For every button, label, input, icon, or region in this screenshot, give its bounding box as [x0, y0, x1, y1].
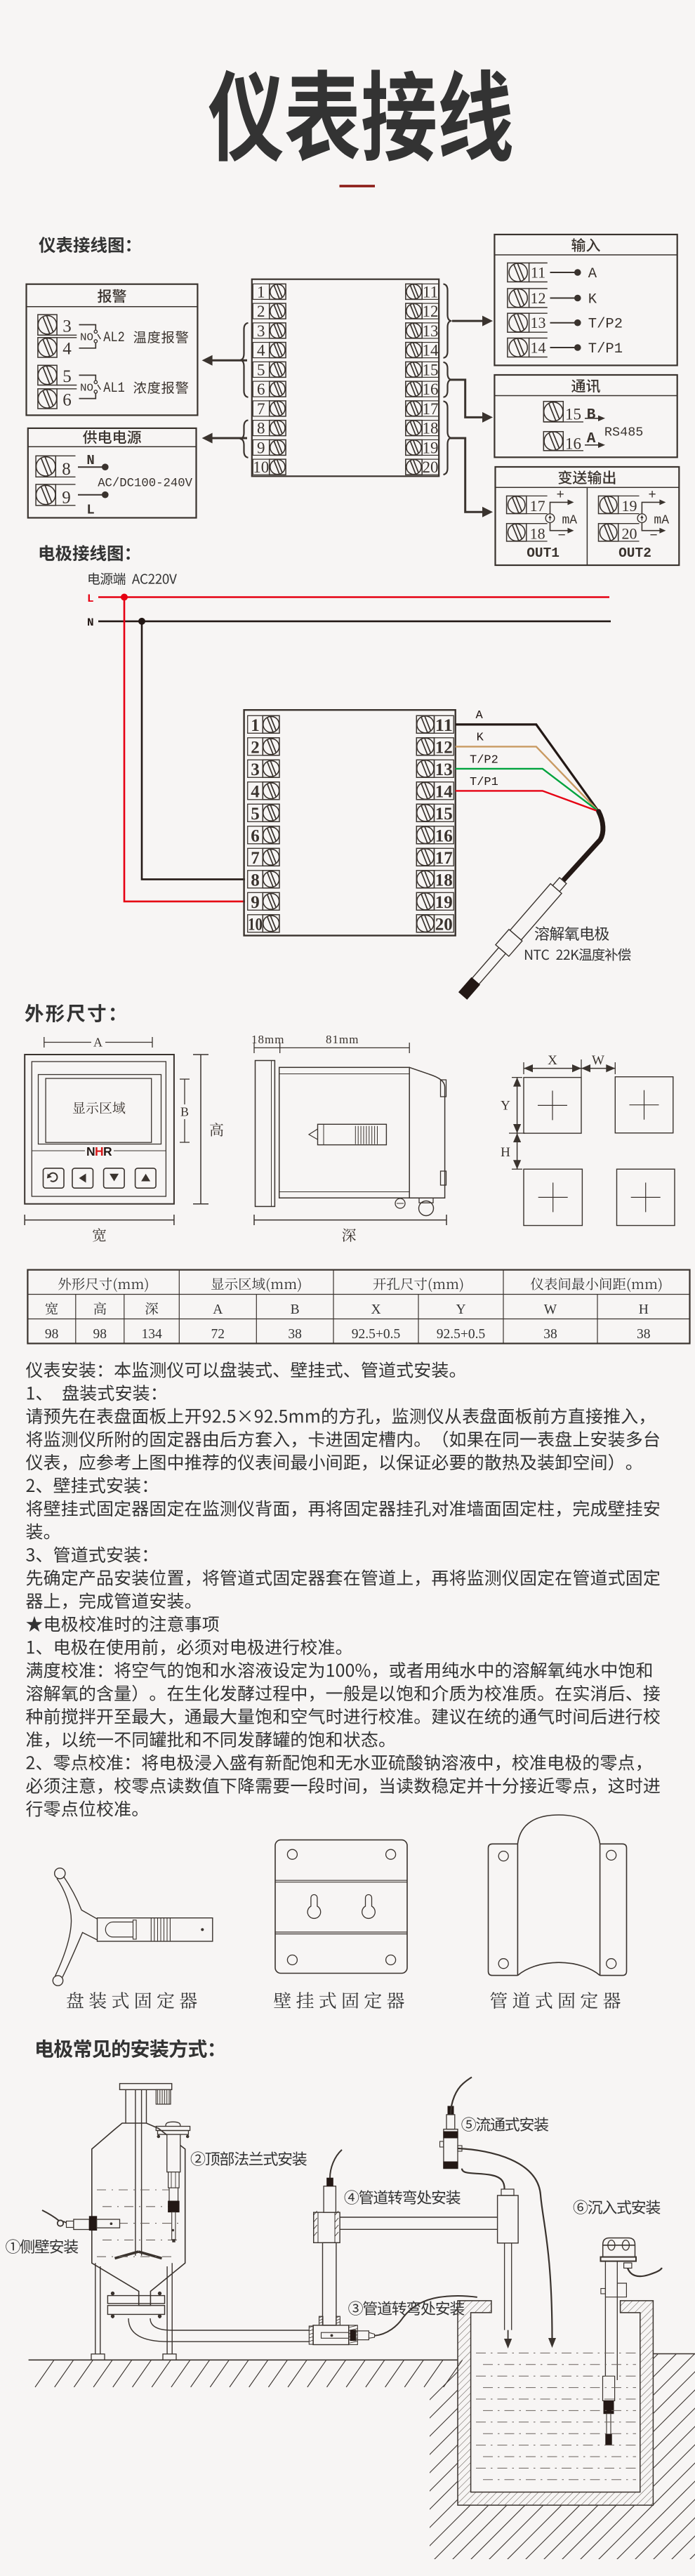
svg-text:Y: Y — [501, 1099, 510, 1114]
svg-text:38: 38 — [543, 1327, 557, 1342]
svg-text:13: 13 — [435, 760, 453, 779]
svg-text:98: 98 — [93, 1327, 107, 1342]
svg-text:W: W — [592, 1053, 604, 1068]
svg-text:A: A — [213, 1302, 223, 1317]
svg-text:+: + — [648, 487, 656, 503]
svg-text:4: 4 — [62, 340, 72, 359]
svg-text:18: 18 — [423, 420, 439, 437]
svg-text:K: K — [477, 732, 484, 745]
svg-text:18: 18 — [530, 524, 545, 542]
svg-text:RS485: RS485 — [604, 425, 644, 440]
svg-text:AL2: AL2 — [103, 330, 125, 346]
svg-text:18: 18 — [435, 871, 453, 890]
svg-text:NO: NO — [80, 382, 93, 394]
svg-text:19: 19 — [435, 893, 453, 912]
svg-text:7: 7 — [251, 849, 260, 868]
svg-text:20: 20 — [435, 915, 453, 934]
svg-text:X: X — [371, 1302, 380, 1317]
svg-text:15: 15 — [435, 805, 453, 824]
svg-text:8: 8 — [62, 460, 71, 479]
svg-text:AL1: AL1 — [103, 381, 125, 397]
svg-text:−: − — [649, 528, 657, 543]
svg-text:1: 1 — [257, 283, 265, 300]
svg-text:A: A — [93, 1036, 102, 1050]
svg-text:8: 8 — [257, 420, 265, 437]
svg-text:3: 3 — [257, 322, 265, 340]
svg-text:10: 10 — [253, 458, 269, 476]
svg-text:H: H — [95, 1144, 104, 1158]
svg-text:1: 1 — [251, 716, 260, 735]
svg-text:12: 12 — [531, 289, 546, 307]
svg-text:NO: NO — [80, 332, 93, 344]
svg-text:9: 9 — [62, 489, 71, 508]
svg-text:8: 8 — [251, 871, 260, 890]
svg-text:9: 9 — [257, 439, 265, 456]
svg-text:T/P2: T/P2 — [470, 754, 498, 767]
svg-text:134: 134 — [141, 1327, 162, 1342]
svg-text:B: B — [180, 1105, 189, 1119]
svg-text:−: − — [558, 528, 566, 543]
svg-text:20: 20 — [423, 458, 439, 476]
svg-text:Y: Y — [456, 1302, 465, 1317]
svg-text:10: 10 — [248, 915, 263, 934]
svg-text:12: 12 — [435, 738, 453, 757]
svg-text:N: N — [86, 453, 94, 468]
svg-text:3: 3 — [251, 760, 260, 779]
svg-text:+: + — [557, 487, 564, 503]
svg-text:mA: mA — [562, 514, 578, 528]
svg-text:38: 38 — [637, 1327, 651, 1342]
svg-text:15: 15 — [565, 405, 581, 423]
svg-text:L: L — [87, 593, 94, 605]
svg-text:6: 6 — [62, 391, 72, 410]
svg-text:19: 19 — [622, 497, 637, 515]
svg-text:17: 17 — [435, 849, 453, 868]
svg-text:15: 15 — [423, 361, 439, 378]
svg-text:16: 16 — [435, 826, 453, 845]
svg-text:2: 2 — [257, 303, 265, 320]
svg-text:14: 14 — [423, 342, 439, 359]
svg-text:11: 11 — [531, 264, 545, 282]
svg-text:OUT1: OUT1 — [527, 546, 560, 561]
svg-text:16: 16 — [565, 435, 581, 453]
svg-text:14: 14 — [531, 339, 546, 357]
svg-text:11: 11 — [435, 716, 453, 735]
svg-text:72: 72 — [211, 1327, 225, 1342]
svg-text:11: 11 — [423, 283, 438, 300]
svg-text:7: 7 — [257, 400, 265, 418]
svg-text:L: L — [86, 503, 94, 518]
svg-text:OUT2: OUT2 — [618, 546, 651, 561]
svg-text:T/P2: T/P2 — [588, 317, 623, 333]
svg-text:17: 17 — [423, 400, 439, 418]
svg-text:B: B — [587, 407, 596, 423]
svg-text:6: 6 — [251, 826, 260, 845]
svg-text:N: N — [86, 1144, 95, 1158]
svg-text:B: B — [291, 1302, 300, 1317]
svg-text:T/P1: T/P1 — [470, 776, 498, 789]
svg-text:X: X — [548, 1053, 557, 1068]
svg-text:16: 16 — [423, 381, 439, 398]
svg-text:13: 13 — [531, 314, 546, 331]
svg-text:92.5+0.5: 92.5+0.5 — [352, 1327, 401, 1342]
svg-text:W: W — [544, 1302, 557, 1317]
svg-text:4: 4 — [257, 342, 265, 359]
svg-text:17: 17 — [530, 497, 545, 515]
svg-text:K: K — [588, 292, 597, 308]
svg-text:5: 5 — [62, 367, 72, 386]
svg-text:R: R — [103, 1144, 112, 1158]
svg-text:A: A — [476, 709, 484, 722]
svg-text:19: 19 — [423, 439, 439, 456]
svg-text:20: 20 — [622, 524, 637, 542]
svg-text:2: 2 — [251, 738, 260, 757]
svg-text:5: 5 — [251, 805, 260, 824]
svg-text:9: 9 — [251, 893, 260, 912]
svg-text:5: 5 — [257, 361, 265, 378]
svg-text:92.5+0.5: 92.5+0.5 — [437, 1327, 486, 1342]
svg-text:A: A — [588, 266, 597, 282]
svg-text:T/P1: T/P1 — [588, 341, 623, 357]
svg-text:AC/DC100-240V: AC/DC100-240V — [98, 477, 192, 491]
svg-text:3: 3 — [62, 317, 72, 336]
svg-text:H: H — [639, 1302, 649, 1317]
svg-text:4: 4 — [251, 782, 260, 801]
svg-text:12: 12 — [423, 303, 439, 320]
svg-text:mA: mA — [654, 514, 669, 528]
svg-text:38: 38 — [288, 1327, 302, 1342]
svg-text:13: 13 — [423, 322, 439, 340]
svg-text:14: 14 — [435, 782, 454, 801]
svg-text:81mm: 81mm — [326, 1033, 359, 1046]
svg-text:N: N — [87, 616, 94, 629]
svg-text:H: H — [501, 1145, 510, 1160]
svg-text:98: 98 — [45, 1327, 59, 1342]
svg-text:6: 6 — [257, 381, 265, 398]
